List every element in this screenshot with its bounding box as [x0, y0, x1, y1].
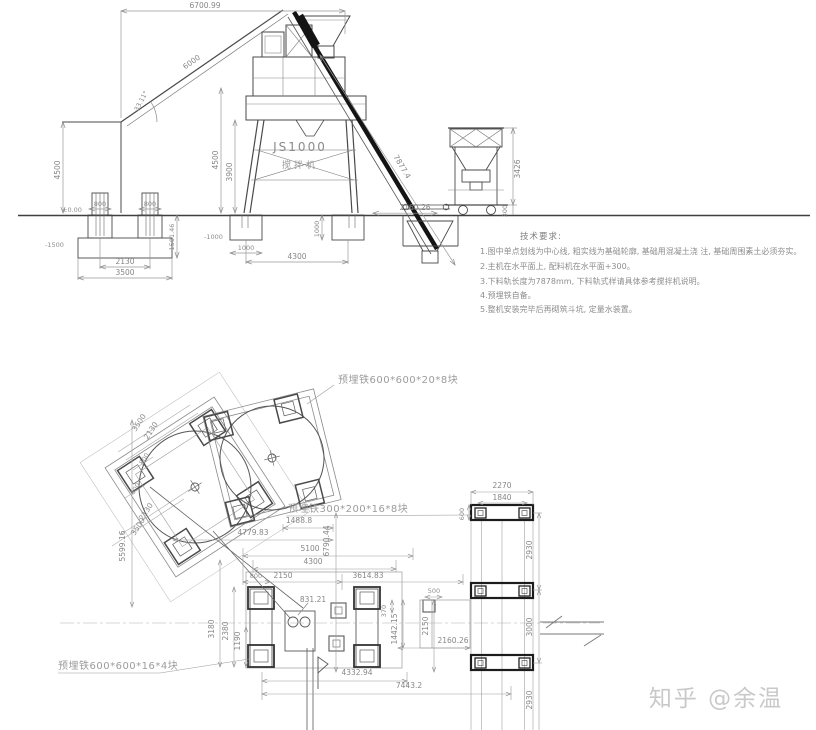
tower-footings [230, 215, 364, 240]
dim-footing-span: 4300 [287, 252, 306, 261]
embed-label-mid: 预埋铁300*200*16*8块 [288, 502, 408, 515]
note-4: 4.预埋铁自备。 [480, 290, 536, 300]
dim-w500: 500 [428, 587, 440, 595]
aggregate-batcher [446, 128, 508, 215]
skip-track [288, 12, 437, 254]
dim-ped-depth: 1501.46 [168, 224, 176, 251]
dim-batcher-base: 300 [501, 205, 509, 217]
embed-label-top: 预埋铁600*600*20*8块 [338, 373, 458, 386]
dim-v6790: 6790.44 [322, 525, 331, 556]
machine-name: 搅拌机 [282, 159, 318, 171]
dim-w5100: 5100 [300, 544, 319, 553]
dim-v3180: 3180 [207, 619, 216, 638]
level-minus-1500: -1500 [45, 241, 64, 249]
dim-v2150: 2150 [421, 616, 430, 635]
dim-mast-height: 4500 [53, 160, 62, 179]
dim-rail-angle: 33.11° [133, 90, 150, 113]
dim-pad-width: 1000 [238, 244, 255, 252]
dim-w4332: 4332.94 [341, 668, 372, 677]
plan-dimensions [132, 420, 542, 730]
machine-model: JS1000 [272, 140, 327, 154]
dim-w1488: 1488.8 [286, 516, 312, 525]
dim-mat-width: 3500 [115, 268, 134, 277]
dim-pit-offset: 2160.26 [399, 203, 430, 212]
batcher-foundation-plan [471, 505, 604, 730]
machine-label: JS1000 搅拌机 [272, 140, 327, 171]
dim-r600: 600 [458, 508, 466, 520]
dim-r3000: 3000 [525, 617, 534, 636]
dim-ped-width-b: 800 [144, 200, 156, 208]
note-5: 5.整机安装完毕后再砌筑斗坑, 定量水装置。 [480, 304, 637, 314]
dim-leg-height: 3900 [225, 162, 234, 181]
dim-r2930b: 2930 [525, 690, 534, 709]
level-zero: ±0.00 [62, 206, 82, 214]
winch-foundation [78, 193, 172, 258]
dim-w800: 800 [250, 572, 262, 580]
dim-w4300: 4300 [303, 557, 322, 566]
elevation-view: 6700.99 6000 33.11° 4500 4500 3900 7877.… [18, 1, 810, 280]
dim-a600: 600 [129, 482, 142, 497]
level-minus-1000: -1000 [204, 233, 223, 241]
dim-v1442: 1442.15 [390, 613, 399, 644]
dim-w2160: 2160.26 [437, 636, 468, 645]
mixer-tower [244, 96, 366, 213]
dim-v1190: 1190 [233, 631, 242, 650]
note-2: 2.主机在水平面上, 配料机在水平面+300。 [480, 261, 635, 271]
dim-tower-height: 4500 [211, 150, 220, 169]
dim-pad-depth: 1000 [313, 221, 321, 238]
dim-a2130: 2130 [142, 420, 160, 441]
dim-top-width: 6700.99 [189, 1, 220, 10]
cad-drawing: 6700.99 6000 33.11° 4500 4500 3900 7877.… [0, 0, 816, 730]
dim-ped-width-a: 800 [94, 200, 106, 208]
note-1: 1.图中单点划线为中心线, 粗实线为基础轮廓, 基础用混凝土浇 注, 基础周围素… [480, 246, 801, 256]
dim-c831: 831.21 [300, 595, 326, 604]
note-3: 3.下料轨长度为7878mm, 下料轨式样请具体参考搅拌机说明。 [480, 276, 705, 286]
dim-w3614: 3614.83 [352, 571, 383, 580]
dim-ped-span: 2130 [115, 257, 134, 266]
dim-batcher-height: 3426 [513, 159, 522, 178]
dim-r2930a: 2930 [525, 540, 534, 559]
dim-r1840: 1840 [492, 493, 511, 502]
dim-r2270: 2270 [492, 481, 511, 490]
direction-arrows [540, 616, 604, 646]
technical-notes: 技术要求: 1.图中单点划线为中心线, 粗实线为基础轮廓, 基础用混凝土浇 注,… [480, 231, 801, 314]
plan-texts: 预埋铁600*600*20*8块 预埋铁300*200*16*8块 预埋铁600… [58, 373, 534, 710]
watermark: 知乎 @余温 [649, 686, 783, 712]
dim-v370: 370 [380, 605, 388, 617]
notes-title: 技术要求: [520, 231, 562, 242]
dim-w2150: 2150 [273, 571, 292, 580]
dim-w4779: 4779.83 [237, 528, 268, 537]
embed-label-bottom: 预埋铁600*600*16*4块 [58, 659, 178, 672]
plan-view: 预埋铁600*600*20*8块 预埋铁300*200*16*8块 预埋铁600… [58, 372, 604, 730]
dim-w7443: 7443.2 [396, 681, 422, 690]
dim-v2380: 2380 [221, 621, 230, 640]
dim-v5599: 5599.16 [118, 530, 127, 561]
